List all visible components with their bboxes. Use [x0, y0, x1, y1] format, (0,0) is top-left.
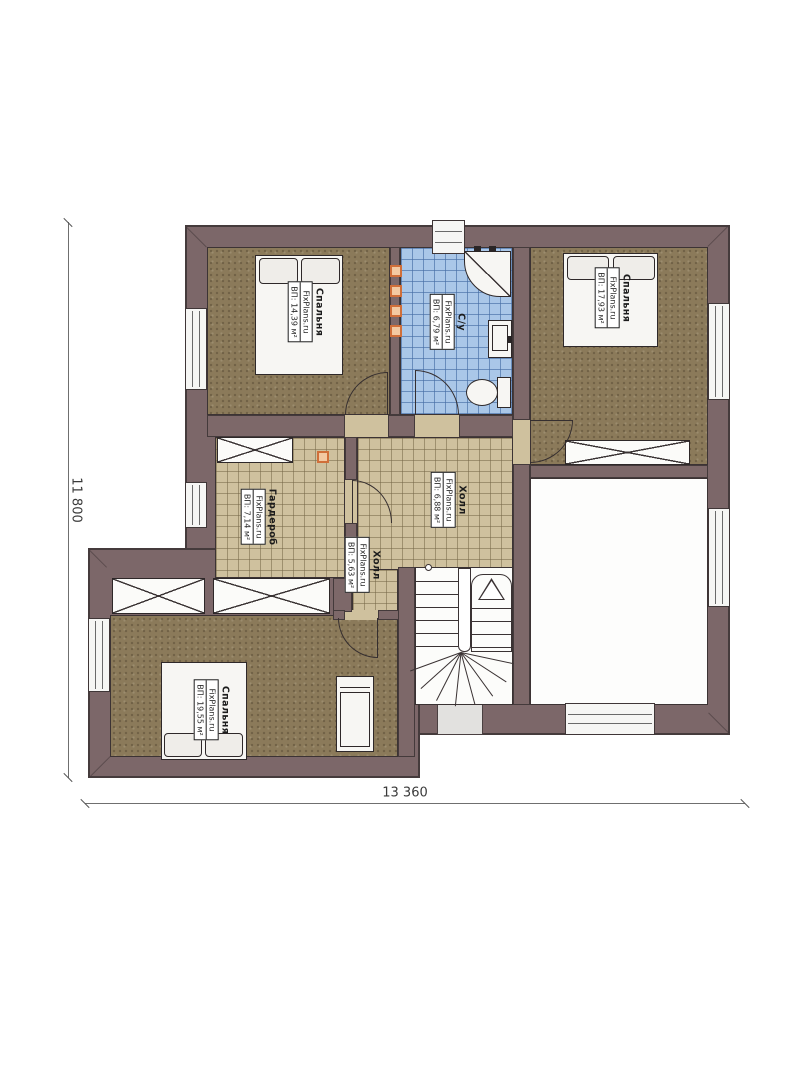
- wall-hall-right: [513, 247, 530, 420]
- sink: [488, 320, 512, 358]
- stair-tread: [416, 607, 458, 608]
- wardrobe-unit: [112, 578, 205, 614]
- shower-faucet-icon: [489, 246, 496, 252]
- heating-marker: [390, 265, 402, 277]
- stair-start-marker: [425, 564, 432, 571]
- room-area: ВП: 7,14 м²: [241, 490, 253, 544]
- stair-tread: [416, 594, 458, 595]
- wardrobe-unit: [213, 578, 330, 614]
- wall-horizontal-main: [207, 415, 345, 437]
- staircase: [415, 567, 513, 705]
- wall-stairs-left: [398, 567, 415, 757]
- stair-tread: [416, 620, 458, 621]
- room-label-bedroom-bottom-left: Спальня FixPlans.ru ВП: 19,55 м²: [193, 679, 230, 740]
- room-label-hall-main: Холл FixPlans.ru ВП: 6,88 м²: [430, 472, 467, 528]
- stair-tread: [416, 633, 458, 634]
- stair-winder: [410, 652, 461, 671]
- room-name: Гардероб: [267, 489, 278, 546]
- wardrobe-unit: [565, 440, 690, 465]
- heating-marker: [390, 285, 402, 297]
- room-label-bathroom: С/у FixPlans.ru ВП: 6,79 м²: [429, 294, 466, 350]
- stair-tread: [416, 646, 458, 647]
- window-bedroom-bl: [88, 618, 110, 692]
- room-label-bedroom-top-left: Спальня FixPlans.ru ВП: 14,39 м²: [287, 281, 324, 342]
- wall-horizontal-main: [459, 415, 513, 437]
- stair-winder: [421, 652, 462, 689]
- watermark: FixPlans.ru: [301, 282, 312, 341]
- room-area: ВП: 5,63 м²: [345, 538, 357, 592]
- pillow: [259, 258, 298, 284]
- wall-wardrobe-right: [345, 437, 357, 480]
- window-unlabeled-room-right: [708, 508, 730, 607]
- room-area: ВП: 6,88 м²: [431, 473, 443, 527]
- room-name: Спальня: [220, 686, 231, 734]
- floor-unlabeled-room: [530, 478, 708, 705]
- dimension-line-bottom: [85, 803, 745, 804]
- heating-marker: [390, 305, 402, 317]
- floor-plan-canvas: Спальня FixPlans.ru ВП: 14,39 м² С/у Fix…: [0, 0, 792, 1080]
- window-bathroom-top: [432, 220, 465, 254]
- room-name: Спальня: [314, 288, 325, 336]
- room-area: ВП: 14,39 м²: [288, 282, 300, 341]
- shower-faucet-icon: [474, 246, 481, 252]
- stair-tread: [471, 621, 512, 622]
- stair-tread: [471, 647, 512, 648]
- door-opening: [415, 415, 459, 437]
- wall-niche: [437, 703, 483, 735]
- watermark: FixPlans.ru: [444, 473, 455, 527]
- watermark: FixPlans.ru: [443, 295, 454, 349]
- room-name: Холл: [457, 485, 468, 514]
- pillow: [301, 258, 340, 284]
- room-name: Спальня: [621, 274, 632, 322]
- room-label-bedroom-top-right: Спальня FixPlans.ru ВП: 17,93 м²: [594, 267, 631, 328]
- dresser: [336, 676, 374, 752]
- watermark: FixPlans.ru: [358, 538, 369, 592]
- stair-tread: [416, 581, 458, 582]
- door-opening: [345, 415, 388, 437]
- wall-horizontal-main: [388, 415, 415, 437]
- stair-stringer: [458, 568, 471, 652]
- stair-tread: [471, 634, 512, 635]
- wall-bedroom-tr-bottom: [530, 465, 708, 478]
- room-label-wardrobe: Гардероб FixPlans.ru ВП: 7,14 м²: [240, 489, 277, 546]
- wardrobe-unit: [217, 437, 293, 463]
- watermark: FixPlans.ru: [254, 490, 265, 544]
- stair-tread: [471, 608, 512, 609]
- toilet-bowl: [466, 379, 498, 406]
- room-area: ВП: 17,93 м²: [595, 268, 607, 327]
- door-opening: [513, 420, 530, 464]
- watermark: FixPlans.ru: [207, 680, 218, 739]
- wall-hall-right: [513, 464, 530, 705]
- room-label-hall-small: Холл FixPlans.ru ВП: 5,63 м²: [344, 537, 381, 593]
- toilet-tank: [497, 377, 511, 408]
- window-unlabeled-room-bottom: [565, 703, 655, 735]
- dimension-label-height: 11 800: [69, 477, 84, 523]
- watermark: FixPlans.ru: [608, 268, 619, 327]
- heating-marker: [317, 451, 329, 463]
- window-bedroom-tl: [185, 308, 207, 390]
- window-bedroom-tr: [708, 303, 730, 400]
- room-area: ВП: 6,79 м²: [430, 295, 442, 349]
- room-name: Холл: [371, 550, 382, 579]
- heating-marker: [390, 325, 402, 337]
- room-area: ВП: 19,55 м²: [194, 680, 206, 739]
- dimension-label-width: 13 360: [382, 786, 428, 801]
- window-wardrobe: [185, 482, 207, 528]
- room-name: С/у: [456, 313, 467, 331]
